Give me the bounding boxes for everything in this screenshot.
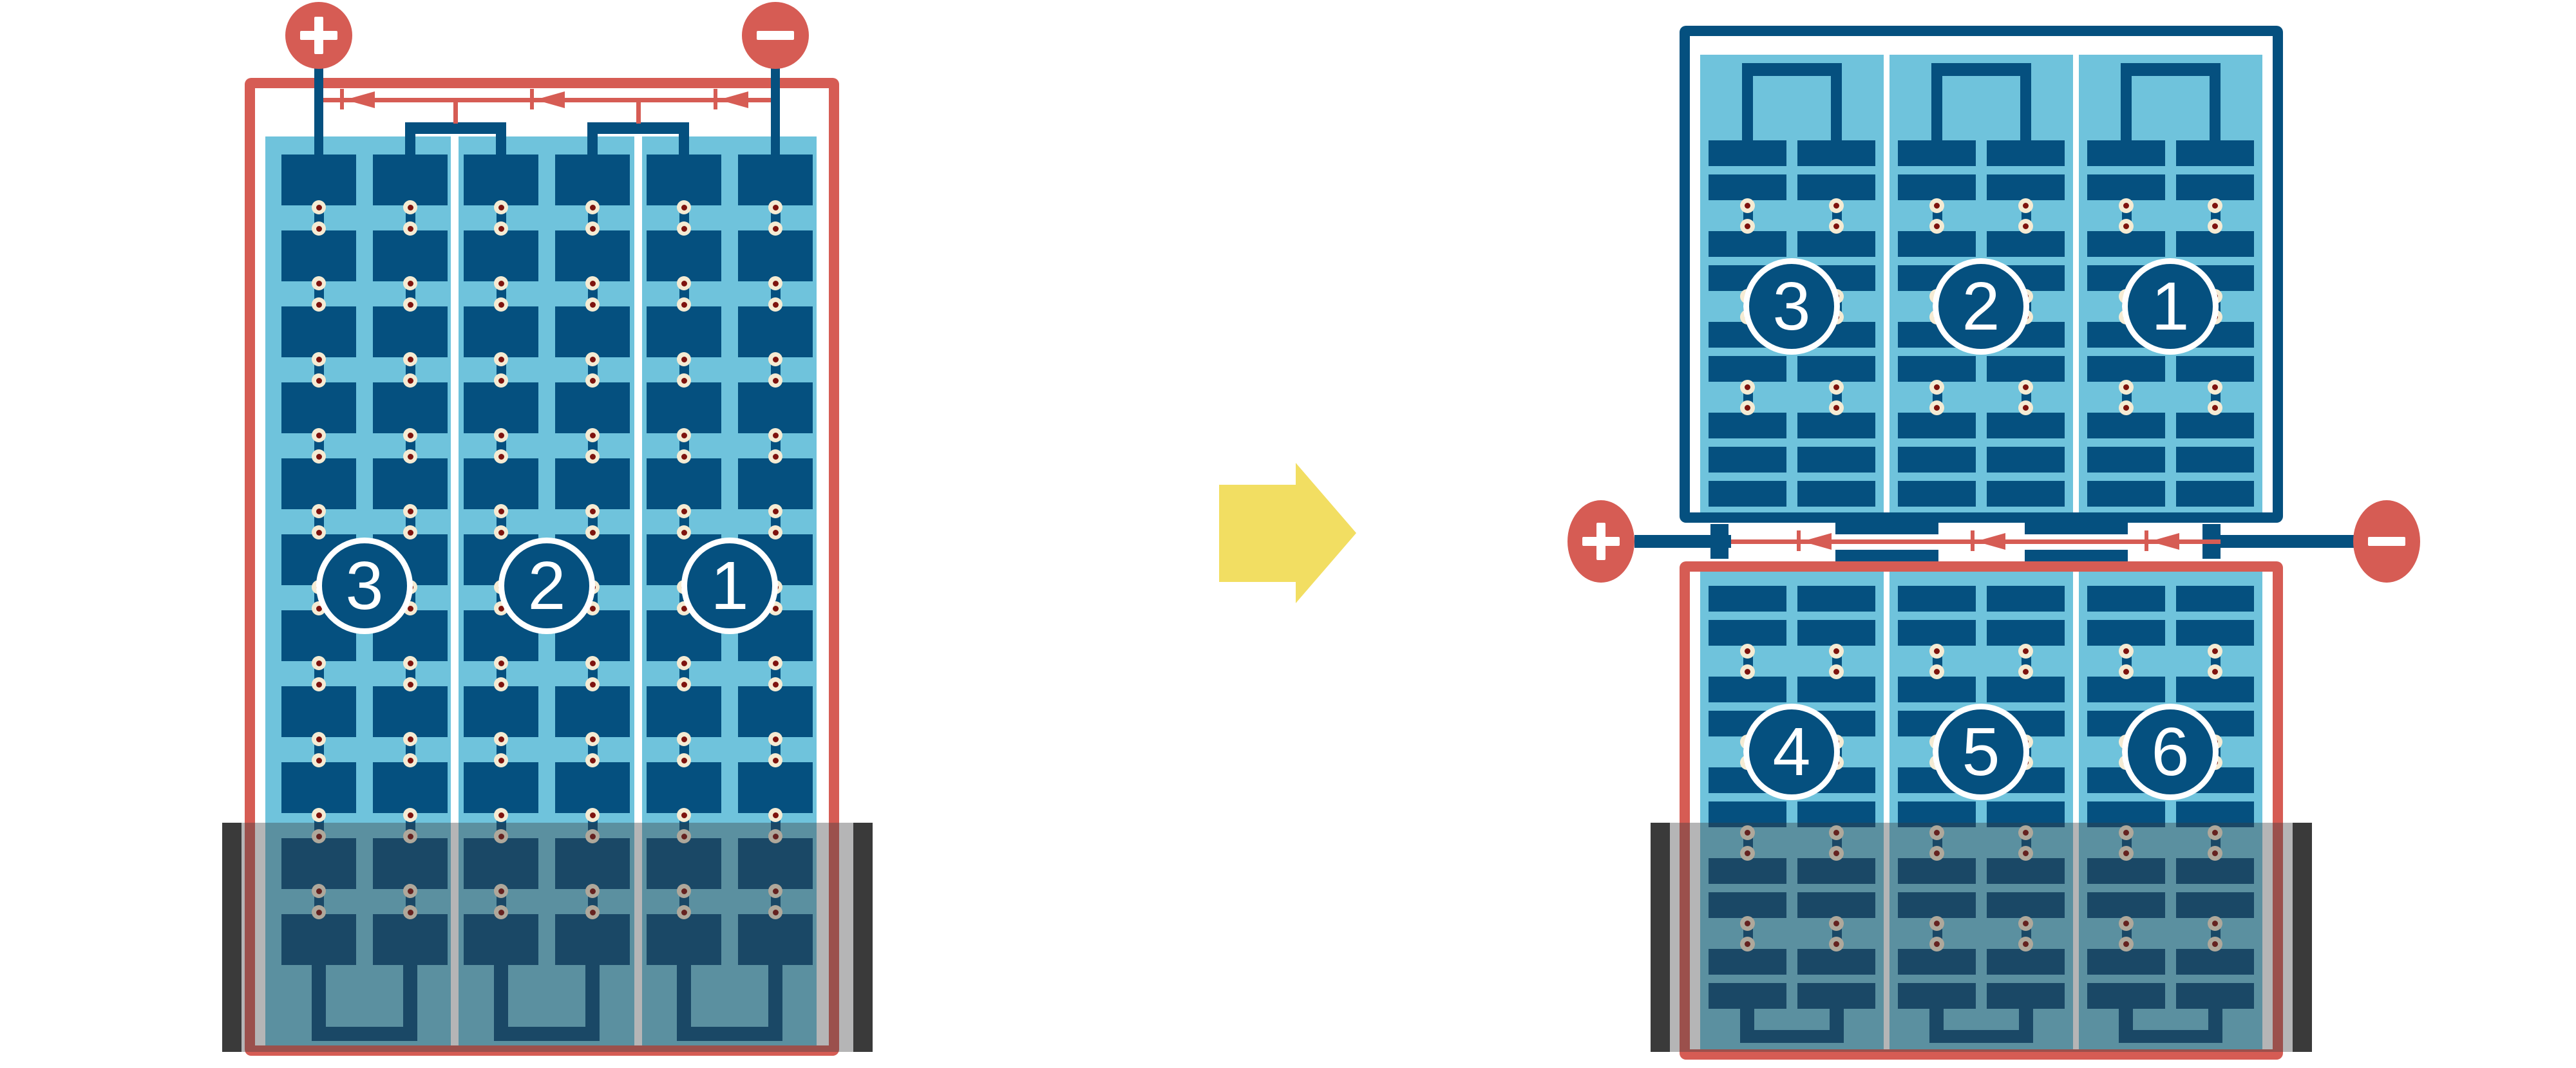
solder-dot-core: [681, 378, 687, 384]
solder-dot-core: [681, 454, 687, 460]
solar-cell: [2176, 140, 2254, 166]
solder-dot-core: [773, 205, 779, 211]
solder-dot-core: [1745, 405, 1750, 411]
left-diode-stub-1: [453, 100, 458, 124]
string-number: 1: [2152, 272, 2190, 341]
solder-dot-core: [408, 433, 413, 438]
right-shade-overlay: [1651, 823, 2312, 1052]
solder-dot-core: [2212, 669, 2218, 675]
left-string-label-1: 1: [681, 538, 778, 634]
solar-cell: [464, 306, 538, 357]
solder-dot-core: [2212, 405, 2218, 411]
right-diode-arrow-icon-3: [2150, 533, 2179, 550]
solder-dot-core: [316, 281, 322, 286]
solder-dot-core: [316, 226, 322, 232]
left-diode-tick-2: [530, 89, 534, 109]
solder-dot-core: [773, 454, 779, 460]
solar-cell: [1987, 586, 2065, 612]
solder-dot-core: [681, 226, 687, 232]
solar-cell: [281, 230, 356, 281]
solar-cell: [281, 458, 356, 509]
string-number: 3: [346, 552, 384, 620]
solder-dot-core: [408, 736, 413, 742]
solar-cell: [464, 230, 538, 281]
solder-dot-core: [498, 378, 504, 384]
solder-dot-core: [590, 682, 596, 688]
left-string-label-2: 2: [498, 538, 595, 634]
solder-dot-core: [1934, 203, 1940, 209]
solder-dot-core: [681, 660, 687, 666]
right-positive-wire: [1634, 535, 1731, 548]
solder-dot-core: [498, 736, 504, 742]
solder-dot-core: [408, 758, 413, 764]
solder-dot-core: [773, 682, 779, 688]
solder-dot-core: [773, 378, 779, 384]
solder-dot-core: [316, 530, 322, 536]
solder-dot-core: [773, 357, 779, 362]
solder-dot-core: [590, 226, 596, 232]
solder-dot-core: [773, 226, 779, 232]
solder-dot-core: [498, 812, 504, 818]
solder-dot-core: [498, 682, 504, 688]
solar-cell: [281, 382, 356, 433]
solder-dot-core: [590, 454, 596, 460]
solder-dot-core: [1745, 648, 1750, 654]
solder-dot-core: [408, 660, 413, 666]
solar-cell: [1898, 481, 1976, 507]
solar-cell: [373, 762, 448, 813]
solder-dot-core: [590, 302, 596, 308]
solder-dot-core: [498, 281, 504, 286]
solder-dot-core: [1745, 223, 1750, 229]
solar-cell: [464, 686, 538, 737]
right-top-bridge-1: [2121, 63, 2221, 140]
plus-icon: [1596, 523, 1605, 560]
solar-cell: [647, 306, 721, 357]
solder-dot-core: [316, 682, 322, 688]
solder-dot-core: [2212, 203, 2218, 209]
solar-cell: [373, 155, 448, 205]
solar-cell: [464, 458, 538, 509]
solar-cell: [1709, 140, 1786, 166]
solder-dot-core: [773, 530, 779, 536]
solder-dot-core: [681, 509, 687, 514]
solder-dot-core: [2023, 203, 2029, 209]
solder-dot-core: [316, 302, 322, 308]
solder-dot-core: [498, 357, 504, 362]
left-negative-terminal: [742, 2, 809, 69]
diagram-stage: 3 2 1 3 2 1 4 5 6: [0, 0, 2576, 1068]
solder-dot-core: [498, 758, 504, 764]
solder-dot-core: [408, 281, 413, 286]
solder-dot-core: [681, 758, 687, 764]
solar-cell: [1987, 140, 2065, 166]
minus-icon: [757, 31, 794, 40]
solder-dot-core: [2023, 223, 2029, 229]
solder-dot-core: [1934, 384, 1940, 390]
solder-dot-core: [316, 736, 322, 742]
solar-cell: [2087, 481, 2165, 507]
solder-dot-core: [498, 454, 504, 460]
left-diode-arrow-icon-3: [719, 91, 748, 108]
solar-cell: [1709, 481, 1786, 507]
solder-dot-core: [590, 433, 596, 438]
solder-dot-core: [590, 357, 596, 362]
minus-icon: [2368, 537, 2405, 546]
right-diode-tick-3: [2145, 530, 2148, 551]
solar-cell: [647, 686, 721, 737]
left-negative-wire: [771, 61, 780, 200]
solder-dot-core: [498, 509, 504, 514]
solder-dot-core: [681, 682, 687, 688]
solder-dot-core: [408, 530, 413, 536]
solder-dot-core: [498, 660, 504, 666]
right-negative-terminal: [2353, 500, 2420, 583]
junction-tab-bottom-2: [2025, 550, 2128, 561]
right-top-string-label-2: 2: [1933, 258, 2029, 355]
string-number: 3: [1773, 272, 1811, 341]
string-number: 1: [711, 552, 749, 620]
solder-dot-core: [498, 530, 504, 536]
solder-dot-core: [681, 357, 687, 362]
solar-cell: [647, 762, 721, 813]
solder-dot-core: [590, 758, 596, 764]
string-number: 2: [1962, 272, 2000, 341]
solar-cell: [2087, 586, 2165, 612]
solder-dot-core: [773, 433, 779, 438]
left-string-label-3: 3: [316, 538, 413, 634]
solar-cell: [555, 686, 630, 737]
string-number: 5: [1962, 718, 2000, 786]
arrow-right-icon: [1296, 463, 1356, 603]
right-top-string-label-3: 3: [1743, 258, 1840, 355]
right-top-bridge-3: [1742, 63, 1842, 140]
solar-cell: [555, 306, 630, 357]
solar-cell: [2176, 481, 2254, 507]
solder-dot-core: [773, 736, 779, 742]
solder-dot-core: [1833, 405, 1839, 411]
solar-cell: [1709, 586, 1786, 612]
solder-dot-core: [1833, 223, 1839, 229]
right-top-string-label-1: 1: [2122, 258, 2219, 355]
solder-dot-core: [1833, 648, 1839, 654]
solder-dot-core: [681, 530, 687, 536]
string-number: 2: [528, 552, 566, 620]
solar-cell: [2176, 447, 2254, 473]
right-diode-tick-2: [1971, 530, 1975, 551]
solder-dot-core: [2023, 405, 2029, 411]
solder-dot-core: [590, 736, 596, 742]
left-shade-overlay: [222, 823, 873, 1052]
solar-cell: [738, 382, 813, 433]
solar-cell: [373, 306, 448, 357]
solar-cell: [281, 686, 356, 737]
left-diode-arrow-icon-2: [535, 91, 565, 108]
solder-dot-core: [1745, 669, 1750, 675]
solar-cell: [738, 458, 813, 509]
solar-cell: [1797, 447, 1875, 473]
right-bottom-string-label-5: 5: [1933, 704, 2029, 800]
solder-dot-core: [316, 378, 322, 384]
solar-cell: [738, 306, 813, 357]
solder-dot-core: [773, 758, 779, 764]
solder-dot-core: [408, 205, 413, 211]
solder-dot-core: [590, 509, 596, 514]
solder-dot-core: [408, 682, 413, 688]
solder-dot-core: [773, 302, 779, 308]
solar-cell: [1987, 481, 2065, 507]
solar-cell: [464, 762, 538, 813]
left-top-bridge-2: [587, 122, 689, 155]
solder-dot-core: [2123, 223, 2129, 229]
left-diode-stub-2: [636, 100, 641, 124]
solder-dot-core: [2023, 669, 2029, 675]
solder-dot-core: [681, 281, 687, 286]
right-negative-wire: [2221, 535, 2354, 548]
right-positive-terminal: [1567, 500, 1634, 583]
solder-dot-core: [316, 812, 322, 818]
solder-dot-core: [316, 660, 322, 666]
arrow-right-icon: [1219, 485, 1296, 582]
solar-cell: [373, 230, 448, 281]
solar-cell: [1898, 140, 1976, 166]
solar-cell: [738, 762, 813, 813]
solar-cell: [1987, 447, 2065, 473]
solar-cell: [738, 686, 813, 737]
left-shade-end-bar-right: [853, 823, 873, 1052]
solder-dot-core: [590, 812, 596, 818]
solar-cell: [2087, 140, 2165, 166]
solder-dot-core: [681, 812, 687, 818]
plus-icon: [314, 17, 323, 54]
left-diode-tick-1: [340, 89, 344, 109]
right-shade-end-bar-left: [1651, 823, 1670, 1052]
left-positive-terminal: [285, 2, 352, 69]
solder-dot-core: [1745, 384, 1750, 390]
left-diode-arrow-icon-1: [345, 91, 375, 108]
solder-dot-core: [316, 758, 322, 764]
solar-cell: [281, 762, 356, 813]
solder-dot-core: [408, 509, 413, 514]
junction-tab-top-1: [1835, 523, 1938, 534]
solar-cell: [2087, 447, 2165, 473]
solder-dot-core: [2123, 203, 2129, 209]
solar-cell: [373, 382, 448, 433]
junction-tab-bottom-1: [1835, 550, 1938, 561]
right-diode-arrow-icon-1: [1802, 533, 1832, 550]
solder-dot-core: [408, 378, 413, 384]
string-number: 6: [2152, 718, 2190, 786]
transform-arrow: [1219, 463, 1356, 603]
solder-dot-core: [2212, 384, 2218, 390]
solar-cell: [555, 155, 630, 205]
solder-dot-core: [2123, 669, 2129, 675]
solar-cell: [373, 458, 448, 509]
solder-dot-core: [773, 509, 779, 514]
solder-dot-core: [681, 205, 687, 211]
right-bottom-string-label-4: 4: [1743, 704, 1840, 800]
right-diode-tick-1: [1797, 530, 1801, 551]
solar-cell: [555, 762, 630, 813]
solar-cell: [2176, 586, 2254, 612]
right-diode-arrow-icon-2: [1976, 533, 2005, 550]
solar-cell: [647, 155, 721, 205]
solar-cell: [1797, 481, 1875, 507]
solar-cell: [555, 458, 630, 509]
solder-dot-core: [498, 226, 504, 232]
solder-dot-core: [1833, 203, 1839, 209]
solar-cell: [1898, 447, 1976, 473]
solder-dot-core: [2023, 384, 2029, 390]
solder-dot-core: [2212, 223, 2218, 229]
solar-cell: [555, 230, 630, 281]
solder-dot-core: [408, 454, 413, 460]
solder-dot-core: [590, 205, 596, 211]
solar-cell: [1797, 586, 1875, 612]
solder-dot-core: [1745, 203, 1750, 209]
solar-cell: [464, 382, 538, 433]
solar-cell: [464, 155, 538, 205]
solder-dot-core: [590, 530, 596, 536]
solder-dot-core: [498, 302, 504, 308]
solar-cell: [647, 458, 721, 509]
solder-dot-core: [316, 509, 322, 514]
solder-dot-core: [1833, 384, 1839, 390]
solar-cell: [1797, 140, 1875, 166]
right-bottom-string-label-6: 6: [2122, 704, 2219, 800]
solar-cell: [555, 382, 630, 433]
solder-dot-core: [408, 357, 413, 362]
right-top-bridge-2: [1931, 63, 2031, 140]
solder-dot-core: [408, 302, 413, 308]
solder-dot-core: [316, 454, 322, 460]
left-top-bridge-1: [405, 122, 506, 155]
solder-dot-core: [1934, 669, 1940, 675]
solar-cell: [738, 230, 813, 281]
solder-dot-core: [316, 205, 322, 211]
solder-dot-core: [681, 302, 687, 308]
solder-dot-core: [316, 433, 322, 438]
solder-dot-core: [590, 378, 596, 384]
solder-dot-core: [681, 736, 687, 742]
solder-dot-core: [590, 660, 596, 666]
solder-dot-core: [2212, 648, 2218, 654]
solder-dot-core: [590, 281, 596, 286]
solar-cell: [281, 306, 356, 357]
solder-dot-core: [1934, 648, 1940, 654]
solar-cell: [1709, 447, 1786, 473]
solar-cell: [647, 382, 721, 433]
solder-dot-core: [2123, 405, 2129, 411]
solder-dot-core: [681, 433, 687, 438]
solder-dot-core: [1833, 669, 1839, 675]
solder-dot-core: [408, 812, 413, 818]
solder-dot-core: [408, 226, 413, 232]
solder-dot-core: [1934, 223, 1940, 229]
left-positive-wire: [314, 61, 323, 200]
solder-dot-core: [498, 433, 504, 438]
solder-dot-core: [2023, 648, 2029, 654]
solder-dot-core: [773, 812, 779, 818]
right-shade-end-bar-right: [2293, 823, 2312, 1052]
solder-dot-core: [2123, 648, 2129, 654]
junction-tab-top-2: [2025, 523, 2128, 534]
solder-dot-core: [2123, 384, 2129, 390]
solder-dot-core: [773, 660, 779, 666]
solar-cell: [373, 686, 448, 737]
solder-dot-core: [316, 357, 322, 362]
string-number: 4: [1773, 718, 1811, 786]
left-diode-tick-3: [714, 89, 717, 109]
solder-dot-core: [1934, 405, 1940, 411]
solder-dot-core: [773, 281, 779, 286]
solar-cell: [1898, 586, 1976, 612]
solar-cell: [647, 230, 721, 281]
left-shade-end-bar-left: [222, 823, 241, 1052]
solder-dot-core: [498, 205, 504, 211]
